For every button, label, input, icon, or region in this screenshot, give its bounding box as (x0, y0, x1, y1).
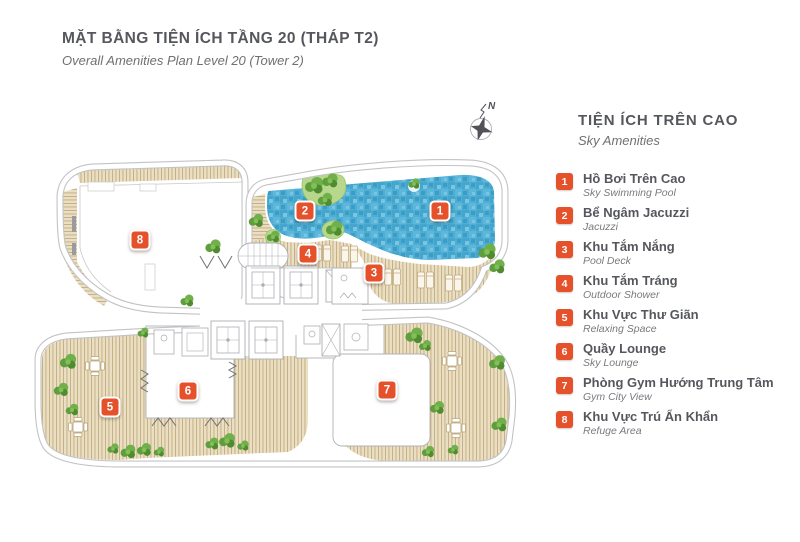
legend: TIỆN ÍCH TRÊN CAO Sky Amenities 1 Hồ Bơi… (556, 112, 792, 437)
legend-item-label-en: Refuge Area (583, 426, 718, 437)
legend-item-label-vi: Bể Ngâm Jacuzzi (583, 206, 689, 220)
legend-item-2: 2 Bể Ngâm Jacuzzi Jacuzzi (556, 206, 792, 233)
legend-item-5: 5 Khu Vực Thư Giãn Relaxing Space (556, 308, 792, 335)
amenities-plan-page: N MẶT BẰNG TIỆN ÍCH TẦNG 20 (THÁP T2) Ov… (0, 0, 800, 542)
legend-item-label-vi: Phòng Gym Hướng Trung Tâm (583, 376, 774, 390)
legend-item-label-en: Sky Lounge (583, 358, 666, 369)
legend-item-badge: 1 (556, 173, 573, 190)
legend-items: 1 Hồ Bơi Trên Cao Sky Swimming Pool 2 Bể… (556, 172, 792, 437)
legend-item-4: 4 Khu Tắm Tráng Outdoor Shower (556, 274, 792, 301)
page-title: MẶT BẰNG TIỆN ÍCH TẦNG 20 (THÁP T2) (62, 30, 379, 48)
legend-item-label-en: Pool Deck (583, 256, 675, 267)
page-header: MẶT BẰNG TIỆN ÍCH TẦNG 20 (THÁP T2) Over… (62, 30, 379, 68)
legend-item-label-vi: Khu Vực Trú Ẩn Khẩn (583, 410, 718, 424)
page-subtitle: Overall Amenities Plan Level 20 (Tower 2… (62, 53, 379, 68)
plan-marker-5: 5 (100, 397, 121, 418)
plan-marker-7: 7 (377, 380, 398, 401)
legend-item-3: 3 Khu Tắm Nắng Pool Deck (556, 240, 792, 267)
legend-item-badge: 5 (556, 309, 573, 326)
legend-item-label-en: Outdoor Shower (583, 290, 678, 301)
legend-item-label-vi: Quầy Lounge (583, 342, 666, 356)
plan-marker-3: 3 (364, 263, 385, 284)
plan-marker-8: 8 (130, 230, 151, 251)
plan-marker-2: 2 (295, 201, 316, 222)
compass-icon: N (468, 101, 497, 144)
legend-item-label-en: Jacuzzi (583, 222, 689, 233)
legend-item-badge: 7 (556, 377, 573, 394)
legend-item-8: 8 Khu Vực Trú Ẩn Khẩn Refuge Area (556, 410, 792, 437)
legend-item-badge: 4 (556, 275, 573, 292)
legend-item-badge: 2 (556, 207, 573, 224)
legend-item-7: 7 Phòng Gym Hướng Trung Tâm Gym City Vie… (556, 376, 792, 403)
legend-subtitle: Sky Amenities (556, 133, 792, 148)
legend-item-label-vi: Khu Vực Thư Giãn (583, 308, 699, 322)
compass-north-label: N (488, 101, 496, 112)
plan-marker-4: 4 (298, 244, 319, 265)
plan-marker-6: 6 (178, 381, 199, 402)
legend-item-label-en: Relaxing Space (583, 324, 699, 335)
legend-item-label-vi: Hồ Bơi Trên Cao (583, 172, 685, 186)
legend-item-badge: 6 (556, 343, 573, 360)
legend-title: TIỆN ÍCH TRÊN CAO (556, 112, 792, 129)
legend-item-1: 1 Hồ Bơi Trên Cao Sky Swimming Pool (556, 172, 792, 199)
legend-item-badge: 8 (556, 411, 573, 428)
legend-item-label-vi: Khu Tắm Nắng (583, 240, 675, 254)
plan-marker-1: 1 (430, 201, 451, 222)
legend-item-label-en: Sky Swimming Pool (583, 188, 685, 199)
legend-item-label-vi: Khu Tắm Tráng (583, 274, 678, 288)
legend-item-label-en: Gym City View (583, 392, 774, 403)
legend-item-badge: 3 (556, 241, 573, 258)
legend-item-6: 6 Quầy Lounge Sky Lounge (556, 342, 792, 369)
